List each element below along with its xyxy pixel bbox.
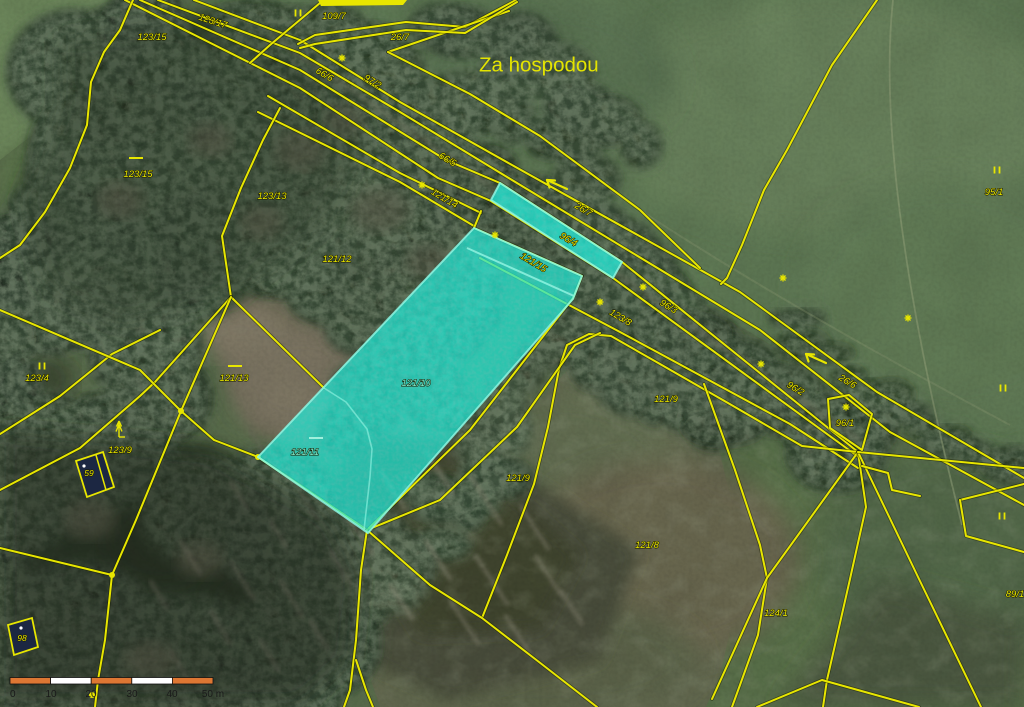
svg-text:123/15: 123/15 [137,32,167,43]
svg-text:30: 30 [126,689,138,700]
svg-text:123/15: 123/15 [123,169,153,180]
svg-text:98: 98 [17,633,27,643]
svg-text:20: 20 [85,689,97,700]
svg-text:121/9: 121/9 [506,473,530,484]
svg-text:89/1: 89/1 [1006,589,1024,600]
svg-text:124/1: 124/1 [764,608,788,619]
svg-text:121/13: 121/13 [219,373,249,384]
svg-text:123/9: 123/9 [108,445,132,456]
svg-text:95/1: 95/1 [985,187,1004,198]
svg-text:121/10: 121/10 [401,378,431,389]
svg-text:26/7: 26/7 [390,32,410,43]
svg-text:121/11: 121/11 [291,447,319,458]
svg-text:50 m: 50 m [202,689,224,700]
svg-text:121/8: 121/8 [635,540,659,551]
svg-text:123/13: 123/13 [257,191,287,202]
svg-text:59: 59 [84,468,94,478]
svg-text:40: 40 [166,689,178,700]
svg-text:10: 10 [45,689,57,700]
svg-text:121/9: 121/9 [654,394,678,405]
svg-text:0: 0 [10,689,16,700]
svg-text:109/7: 109/7 [322,11,346,22]
svg-text:96/1: 96/1 [836,418,855,429]
svg-text:123/4: 123/4 [25,373,49,384]
svg-text:Za hospodou: Za hospodou [479,54,599,77]
svg-text:121/12: 121/12 [322,254,352,265]
